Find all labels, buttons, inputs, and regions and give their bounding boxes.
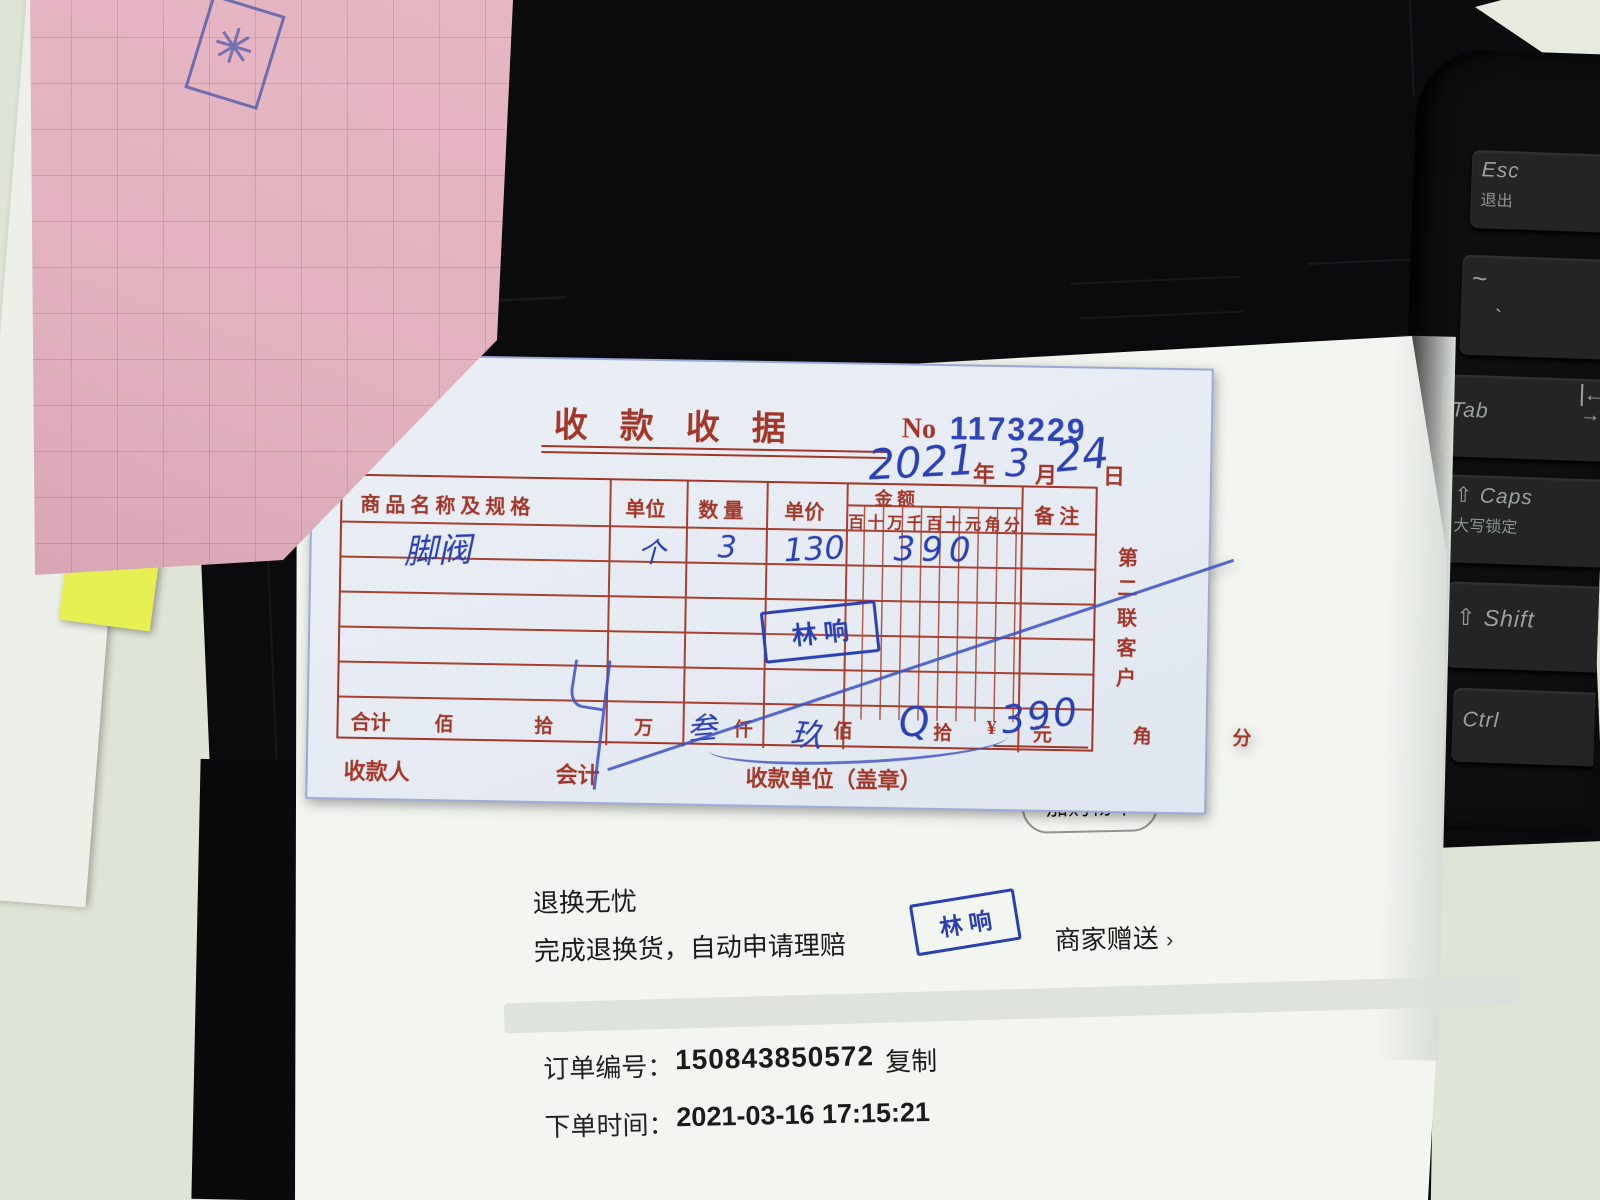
receipt-table: 商 品 名 称 及 规 格 单位 数 量 单价 金 额 百十万千百十元角分 备 … bbox=[336, 474, 1098, 752]
copy-number-label: 第二联客户 bbox=[1108, 547, 1140, 747]
merchant-gift-link[interactable]: 商家赠送 › bbox=[1054, 918, 1173, 957]
col-header-qty: 数 量 bbox=[698, 494, 743, 524]
date-year-hw: 2021 bbox=[867, 435, 976, 490]
order-number-value: 150843850572 bbox=[675, 1040, 875, 1076]
col-header-name: 商 品 名 称 及 规 格 bbox=[360, 488, 530, 520]
col-header-price: 单价 bbox=[784, 495, 825, 525]
col-header-remark: 备 注 bbox=[1034, 500, 1079, 530]
receipt: 收款收据 No 1173229 2021 年 3 月 24 日 商 品 名 称 … bbox=[305, 353, 1214, 815]
row1-price-hw: 130 bbox=[783, 528, 846, 569]
order-time-label: 下单时间： bbox=[544, 1104, 675, 1144]
row1-qty-hw: 3 bbox=[717, 530, 737, 565]
photo-scene: Esc 退出 ~ ` Tab ← → ⇧ Caps 大写锁定 ⇧ Shift C… bbox=[0, 0, 1600, 1200]
lid-vent-mark bbox=[1298, 0, 1414, 100]
return-policy-title: 退换无忧 bbox=[532, 881, 637, 920]
row1-unit-hw: 个 bbox=[637, 531, 666, 571]
date-month-hw: 3 bbox=[1005, 441, 1030, 485]
section-divider bbox=[504, 975, 1519, 1033]
row1-amount-hw: 390 bbox=[893, 529, 977, 570]
lid-seam bbox=[1080, 311, 1245, 320]
row1-name-hw: 脚阀 bbox=[403, 522, 473, 573]
return-policy-desc: 完成退换货，自动申请理赔 bbox=[533, 925, 846, 969]
total-label: 合计 bbox=[350, 706, 391, 736]
pen-hook bbox=[568, 659, 610, 711]
laptop-left-edge bbox=[191, 759, 310, 1200]
esc-key: Esc 退出 bbox=[1470, 150, 1600, 233]
receipt-title: 收款收据 bbox=[553, 397, 818, 451]
payee-label: 收款人 bbox=[343, 754, 410, 787]
copy-button[interactable]: 复制 bbox=[885, 1041, 938, 1079]
esc-key-cn-label: 退出 bbox=[1480, 186, 1600, 215]
order-time-value: 2021-03-16 17:15:21 bbox=[676, 1097, 930, 1133]
order-number-label: 订单编号： bbox=[543, 1046, 674, 1086]
tab-arrows-icon: ← → bbox=[1580, 385, 1600, 426]
pink-paper-stamp bbox=[184, 0, 285, 110]
lid-vent-mark bbox=[1303, 153, 1421, 265]
col-header-amount: 金 额 bbox=[874, 485, 915, 512]
stamp-scribble bbox=[190, 0, 276, 99]
lid-seam bbox=[1070, 276, 1240, 285]
unit-seal-label: 收款单位（盖章） bbox=[745, 761, 922, 796]
col-header-unit: 单位 bbox=[625, 492, 666, 522]
title-underline bbox=[541, 451, 886, 459]
tilde-key-label: ~ bbox=[1471, 263, 1600, 299]
seller-stamp: 林 响 bbox=[909, 888, 1022, 956]
chevron-right-icon: › bbox=[1166, 927, 1174, 952]
date-day-label: 日 bbox=[1103, 459, 1126, 491]
esc-key-label: Esc bbox=[1481, 158, 1600, 187]
